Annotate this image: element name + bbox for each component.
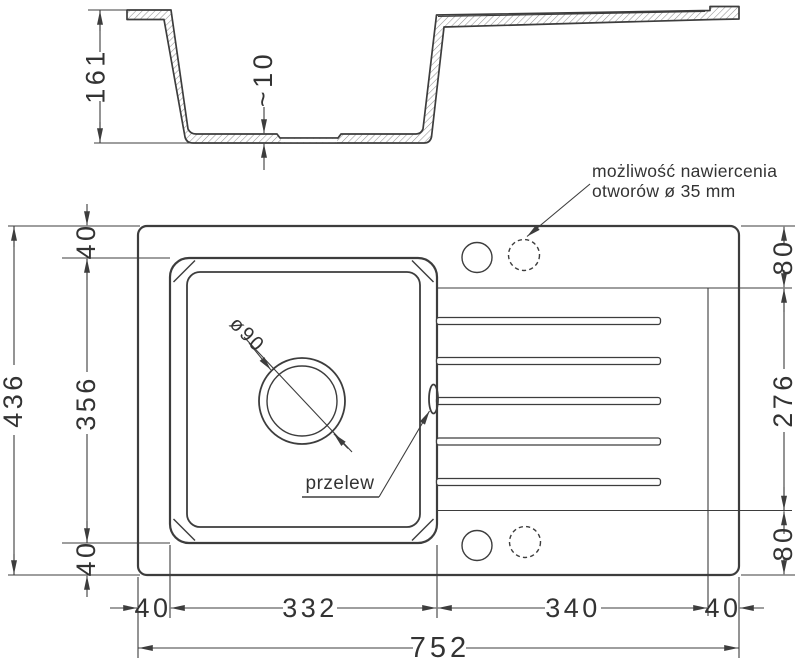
drainer-rib [437, 318, 661, 325]
section-view: 161 ~10 [81, 7, 740, 171]
dim-bottom-thickness: ~10 [248, 51, 278, 107]
plan-view: ø90 przelew możliwość nawiercenia otworó… [138, 161, 792, 616]
dimensions: 436 40 356 40 80 276 [0, 204, 798, 664]
drill-note-leader [527, 184, 590, 237]
dim-bowl-width: 332 [282, 593, 338, 623]
dim-total-width: 752 [410, 632, 470, 664]
faucet-hole-optional-dashed [510, 527, 541, 558]
faucet-hole [462, 531, 492, 561]
faucet-hole-optional-dashed [509, 240, 540, 271]
drain [244, 337, 352, 452]
drill-note-line-1: możliwość nawiercenia [592, 161, 777, 181]
drain-recess-detail [281, 139, 337, 142]
drainer-rib [437, 358, 661, 365]
drainer-rib [437, 398, 661, 405]
dim-section-depth: 161 [81, 48, 111, 104]
drain-diameter-label: ø90 [225, 313, 269, 357]
faucet-hole [462, 243, 492, 273]
dim-left-margin-width: 40 [134, 593, 171, 623]
sink-technical-drawing: 161 ~10 [0, 0, 800, 668]
bowl-inner-edge [187, 272, 420, 527]
technical-drawing-page: 161 ~10 [0, 0, 800, 668]
dim-drainer-width: 340 [545, 593, 601, 623]
dim-drainer-height: 276 [768, 372, 798, 428]
dim-bowl-height: 356 [71, 375, 101, 431]
dim-top-margin: 40 [71, 222, 101, 259]
drill-note-line-2: otworów ø 35 mm [592, 181, 736, 201]
dim-total-height: 436 [0, 372, 28, 428]
dim-drainer-top-offset: 80 [768, 238, 798, 275]
overflow-label: przelew [306, 473, 375, 494]
drainer-rib [437, 438, 661, 445]
drainer-rib [437, 479, 661, 486]
dim-bottom-margin: 40 [71, 539, 101, 576]
dim-drainer-bottom-offset: 80 [768, 524, 798, 561]
dim-right-margin-width: 40 [704, 593, 741, 623]
sink-cross-section-profile [127, 7, 739, 144]
